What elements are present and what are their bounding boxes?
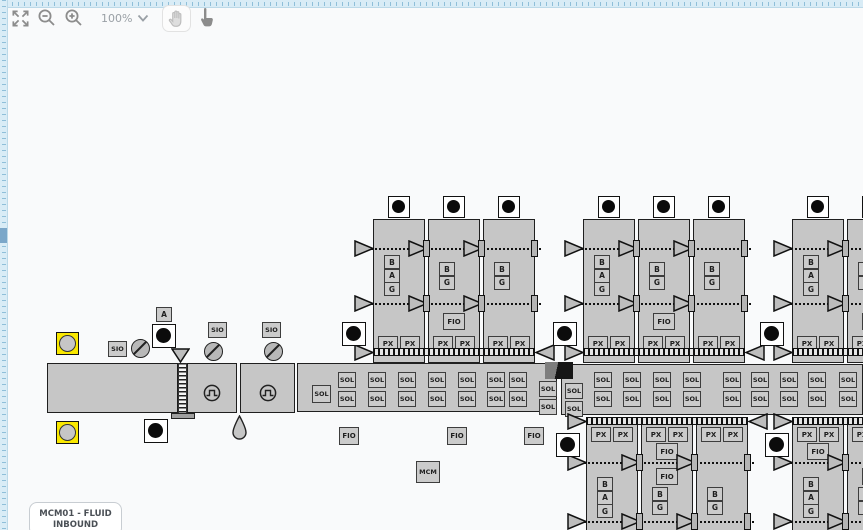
sol-box[interactable]: SOL	[565, 383, 583, 399]
connector-stub	[842, 454, 849, 471]
unit-letter-box[interactable]: A	[803, 269, 819, 283]
flow-arrow-icon	[745, 344, 765, 361]
unit-letter-box[interactable]: A	[803, 491, 819, 505]
sol-box[interactable]: SOL	[653, 372, 671, 388]
port-circle-icon	[59, 424, 76, 441]
indicator-dot-icon	[602, 200, 615, 213]
folded-corner-marker	[545, 362, 573, 379]
unit-letter-box[interactable]: G	[803, 282, 819, 296]
sol-box[interactable]: SOL	[458, 391, 476, 407]
sol-box[interactable]: SOL	[398, 391, 416, 407]
connector-stub	[478, 295, 485, 312]
unit-letter-box[interactable]: B	[439, 262, 455, 276]
unit-letter-box[interactable]: G	[652, 501, 668, 515]
connector-stub	[842, 240, 849, 257]
unit-letter-box[interactable]: B	[858, 262, 863, 276]
flow-arrow-icon	[354, 295, 374, 312]
unit-letter-box[interactable]: G	[494, 276, 510, 290]
flow-arrow-icon	[773, 413, 793, 430]
connector-stub	[744, 454, 751, 471]
flow-line-dotted	[584, 521, 754, 523]
sol-box[interactable]: SOL	[487, 391, 505, 407]
unit-letter-box[interactable]: B	[704, 262, 720, 276]
slash-valve-icon[interactable]	[131, 339, 150, 358]
lamp-dot-icon	[148, 423, 163, 438]
mcm-box[interactable]: MCM	[416, 461, 440, 483]
unit-letter-box[interactable]: B	[597, 477, 613, 491]
sio-box[interactable]: SIO	[208, 322, 227, 338]
port-yellow[interactable]	[56, 421, 79, 444]
flow-arrow-icon	[535, 344, 555, 361]
flow-arrow-icon	[773, 344, 793, 361]
px-box[interactable]: PX	[852, 427, 863, 442]
sol-box[interactable]: SOL	[594, 391, 612, 407]
connector-stub	[531, 295, 538, 312]
sol-box[interactable]: SOL	[368, 391, 386, 407]
port-yellow[interactable]	[56, 332, 79, 355]
indicator-dot-icon	[657, 200, 670, 213]
indicator-dot-icon	[392, 200, 405, 213]
flow-line-dotted	[584, 462, 754, 464]
px-box[interactable]: PX	[819, 427, 839, 442]
status-lamp[interactable]	[556, 433, 580, 457]
connector-stub	[633, 240, 640, 257]
indicator-dot-icon	[712, 200, 725, 213]
unit-letter-box[interactable]: B	[594, 255, 610, 269]
sol-box[interactable]: SOL	[808, 391, 826, 407]
unit-letter-box[interactable]: G	[649, 276, 665, 290]
sol-box[interactable]: SOL	[751, 391, 769, 407]
unit-letter-box[interactable]: B	[803, 255, 819, 269]
slash	[206, 344, 220, 358]
connector-stub	[741, 240, 748, 257]
flow-arrow-icon	[567, 413, 587, 430]
drain-droplet-icon[interactable]	[231, 415, 248, 441]
status-lamp[interactable]	[342, 322, 366, 346]
sol-box[interactable]: SOL	[338, 372, 356, 388]
unit-indicator[interactable]	[598, 196, 620, 218]
unit-letter-box[interactable]: A	[597, 491, 613, 505]
unit-letter-box[interactable]: B	[384, 255, 400, 269]
sol-box[interactable]: SOL	[839, 391, 857, 407]
connector-stub	[688, 240, 695, 257]
fio-box[interactable]: FIO	[443, 313, 465, 330]
slash	[266, 344, 280, 358]
connector-stub	[744, 513, 751, 530]
unit-indicator[interactable]	[443, 196, 465, 218]
sol-box[interactable]: SOL	[338, 391, 356, 407]
px-box[interactable]: PX	[591, 427, 611, 442]
sol-box[interactable]: SOL	[780, 372, 798, 388]
system-label-line1: MCM01 - FLUID	[30, 509, 121, 520]
connector-stub	[741, 295, 748, 312]
sol-box[interactable]: SOL	[539, 399, 557, 415]
sol-box[interactable]: SOL	[368, 372, 386, 388]
sio-box[interactable]: SIO	[262, 322, 281, 338]
flow-line-heavy	[792, 417, 863, 425]
px-box[interactable]: PX	[723, 427, 743, 442]
fio-box[interactable]: FIO	[339, 427, 359, 445]
fio-box[interactable]: FIO	[447, 427, 467, 445]
connector-stub	[478, 240, 485, 257]
px-box[interactable]: PX	[701, 427, 721, 442]
unit-letter-box[interactable]: B	[652, 487, 668, 501]
flow-arrow-icon	[773, 240, 793, 257]
unit-letter-box[interactable]: B	[858, 487, 863, 501]
unit-indicator[interactable]	[807, 196, 829, 218]
slash-valve-icon[interactable]	[204, 342, 223, 361]
sol-box[interactable]: SOL	[428, 372, 446, 388]
sol-box[interactable]: SOL	[623, 372, 641, 388]
unit-letter-box[interactable]: G	[803, 504, 819, 518]
status-lamp[interactable]	[152, 324, 176, 348]
px-box[interactable]: PX	[668, 427, 688, 442]
unit-letter-box[interactable]: G	[858, 276, 863, 290]
pipe-segment[interactable]	[47, 363, 178, 413]
diagram-layer: SOLSOLSOLSOLSOLSOLSOLSOLSOLSOLSOLSOLSOLS…	[0, 0, 863, 530]
connector-stub	[636, 513, 643, 530]
sol-box[interactable]: SOL	[487, 372, 505, 388]
connector-stub	[688, 295, 695, 312]
sol-box[interactable]: SOL	[539, 381, 557, 397]
flow-arrow-icon	[354, 240, 374, 257]
lamp-dot-icon	[560, 437, 575, 452]
unit-letter-box[interactable]: A	[594, 269, 610, 283]
sol-box[interactable]: SOL	[683, 391, 701, 407]
unit-letter-box[interactable]: B	[494, 262, 510, 276]
flow-line-dotted	[581, 248, 751, 250]
flow-arrow-icon	[354, 344, 374, 361]
unit-letter-box[interactable]: G	[858, 501, 863, 515]
flow-arrow-icon	[773, 295, 793, 312]
flow-line-heavy	[583, 348, 745, 356]
pulse-icon	[203, 384, 221, 402]
unit-indicator[interactable]	[653, 196, 675, 218]
connector-stub	[691, 513, 698, 530]
sol-box[interactable]: SOL	[428, 391, 446, 407]
flow-line-heavy	[586, 417, 748, 425]
flow-arrow-icon	[567, 513, 587, 530]
unit-indicator[interactable]	[388, 196, 410, 218]
unit-indicator[interactable]	[498, 196, 520, 218]
connector-stub	[842, 295, 849, 312]
unit-letter-box[interactable]: G	[594, 282, 610, 296]
indicator-dot-icon	[502, 200, 515, 213]
unit-indicator[interactable]	[708, 196, 730, 218]
sol-box[interactable]: SOL	[723, 391, 741, 407]
sol-box[interactable]: SOL	[594, 372, 612, 388]
flow-line-dotted	[371, 248, 541, 250]
flow-arrow-icon	[564, 240, 584, 257]
flow-arrow-icon	[564, 295, 584, 312]
flow-arrow-icon	[773, 513, 793, 530]
lamp-dot-icon	[346, 326, 361, 341]
flow-line-dotted	[581, 303, 751, 305]
sio-box[interactable]: SIO	[108, 341, 127, 357]
sol-box[interactable]: SOL	[808, 372, 826, 388]
indicator-dot-icon	[811, 200, 824, 213]
connector-stub	[636, 454, 643, 471]
connector-stub	[423, 295, 430, 312]
sol-box[interactable]: SOL	[398, 372, 416, 388]
unit-letter-box[interactable]: B	[803, 477, 819, 491]
fio-box[interactable]: FIO	[524, 427, 544, 445]
indicator-dot-icon	[447, 200, 460, 213]
connector-stub	[531, 240, 538, 257]
unit-letter-box[interactable]: G	[707, 501, 723, 515]
funnel-icon	[171, 348, 190, 363]
port-circle-icon	[59, 335, 76, 352]
slash	[133, 341, 147, 355]
lamp-dot-icon	[764, 326, 779, 341]
flow-line-heavy	[373, 348, 535, 356]
unit-letter-box[interactable]: G	[597, 504, 613, 518]
sol-box[interactable]: SOL	[458, 372, 476, 388]
unit-letter-box[interactable]: A	[384, 269, 400, 283]
fio-box[interactable]: FIO	[653, 313, 675, 330]
connector-stub	[423, 240, 430, 257]
system-label-card[interactable]: MCM01 - FLUID INBOUND	[29, 502, 122, 530]
lamp-dot-icon	[156, 328, 171, 343]
joint-base-bar	[171, 413, 195, 419]
sol-box[interactable]: SOL	[509, 372, 527, 388]
lamp-dot-icon	[557, 326, 572, 341]
a-box[interactable]: A	[156, 307, 172, 322]
flow-arrow-icon	[564, 344, 584, 361]
flow-line-heavy	[792, 348, 863, 356]
pulse-icon	[259, 384, 277, 402]
status-lamp[interactable]	[553, 322, 577, 346]
sol-box[interactable]: SOL	[723, 372, 741, 388]
connector-stub	[842, 513, 849, 530]
unit-letter-box[interactable]: G	[384, 282, 400, 296]
flow-arrow-icon	[748, 413, 768, 430]
px-box[interactable]: PX	[797, 427, 817, 442]
px-box[interactable]: PX	[646, 427, 666, 442]
sol-box[interactable]: SOL	[509, 391, 527, 407]
px-box[interactable]: PX	[613, 427, 633, 442]
connector-stub	[691, 454, 698, 471]
unit-letter-box[interactable]: G	[439, 276, 455, 290]
sol-box[interactable]: SOL	[623, 391, 641, 407]
diagram-editor-canvas[interactable]: 100% SOLSOLSOLSOLSOLSOLSOLSOLSOLSOLSOLSO…	[0, 0, 863, 530]
unit-letter-box[interactable]: B	[707, 487, 723, 501]
sol-box[interactable]: SOL	[653, 391, 671, 407]
zipper-joint[interactable]	[178, 363, 187, 414]
unit-letter-box[interactable]: B	[649, 262, 665, 276]
sol-box[interactable]: SOL	[839, 372, 857, 388]
system-label-line2: INBOUND	[30, 520, 121, 530]
slash-valve-icon[interactable]	[264, 342, 283, 361]
sol-box[interactable]: SOL	[751, 372, 769, 388]
status-lamp[interactable]	[144, 419, 168, 443]
flow-line-dotted	[371, 303, 541, 305]
lamp-dot-icon	[769, 437, 784, 452]
sol-box[interactable]: SOL	[780, 391, 798, 407]
status-lamp[interactable]	[760, 322, 784, 346]
connector-stub	[633, 295, 640, 312]
unit-letter-box[interactable]: G	[704, 276, 720, 290]
sol-box[interactable]: SOL	[312, 385, 331, 403]
sol-box[interactable]: SOL	[683, 372, 701, 388]
status-lamp[interactable]	[765, 433, 789, 457]
